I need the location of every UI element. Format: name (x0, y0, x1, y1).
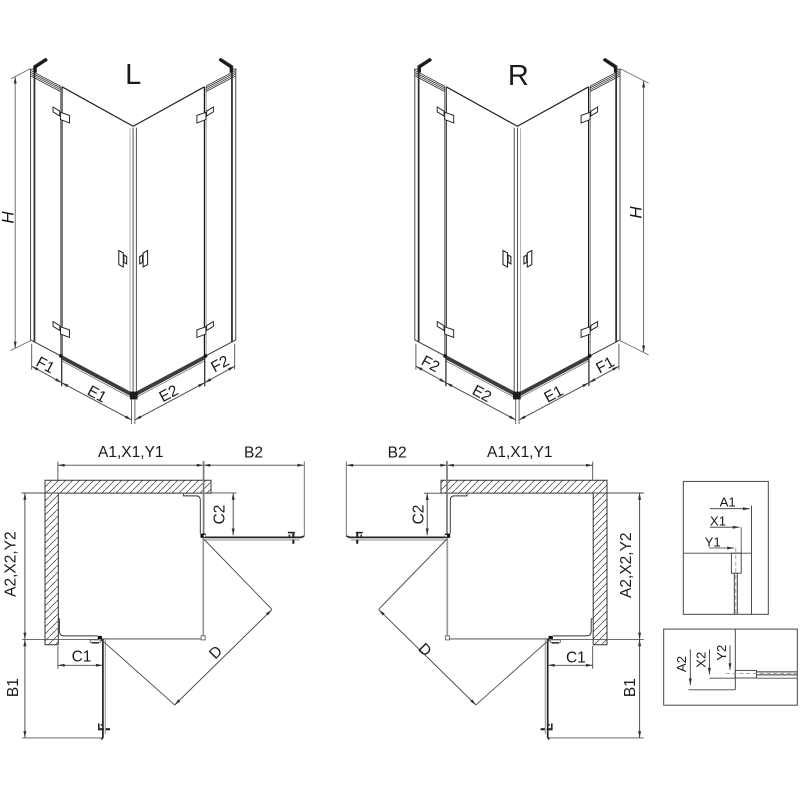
svg-text:C2: C2 (410, 505, 427, 525)
svg-text:B1: B1 (622, 678, 639, 697)
svg-text:F1: F1 (33, 354, 57, 378)
svg-text:A1,X1,Y1: A1,X1,Y1 (487, 444, 553, 461)
svg-text:A2,X2,Y2: A2,X2,Y2 (2, 531, 19, 597)
svg-text:D: D (415, 640, 435, 660)
svg-text:B2: B2 (244, 444, 263, 461)
svg-text:E1: E1 (541, 383, 566, 407)
svg-text:E1: E1 (84, 383, 109, 407)
svg-text:A1,X1,Y1: A1,X1,Y1 (98, 444, 164, 461)
svg-text:R: R (508, 60, 529, 92)
svg-text:L: L (125, 59, 141, 91)
svg-text:F1: F1 (593, 354, 617, 378)
svg-text:E2: E2 (469, 382, 494, 406)
svg-text:H: H (626, 206, 645, 219)
svg-text:C2: C2 (212, 505, 229, 525)
svg-text:Y1: Y1 (705, 534, 721, 549)
svg-text:D: D (206, 643, 226, 663)
svg-text:C1: C1 (566, 649, 586, 666)
svg-text:A2,X2,Y2: A2,X2,Y2 (618, 532, 635, 598)
svg-text:F2: F2 (208, 353, 232, 377)
svg-text:A1: A1 (720, 495, 736, 510)
svg-text:F2: F2 (418, 353, 442, 377)
svg-text:B1: B1 (5, 678, 22, 697)
svg-text:E2: E2 (157, 382, 182, 406)
svg-text:X1: X1 (710, 513, 726, 528)
svg-text:Y2: Y2 (714, 645, 729, 661)
svg-text:A2: A2 (674, 656, 689, 672)
svg-text:H: H (0, 211, 17, 224)
svg-text:C1: C1 (72, 648, 92, 665)
svg-text:B2: B2 (388, 444, 407, 461)
svg-text:X2: X2 (693, 652, 708, 668)
